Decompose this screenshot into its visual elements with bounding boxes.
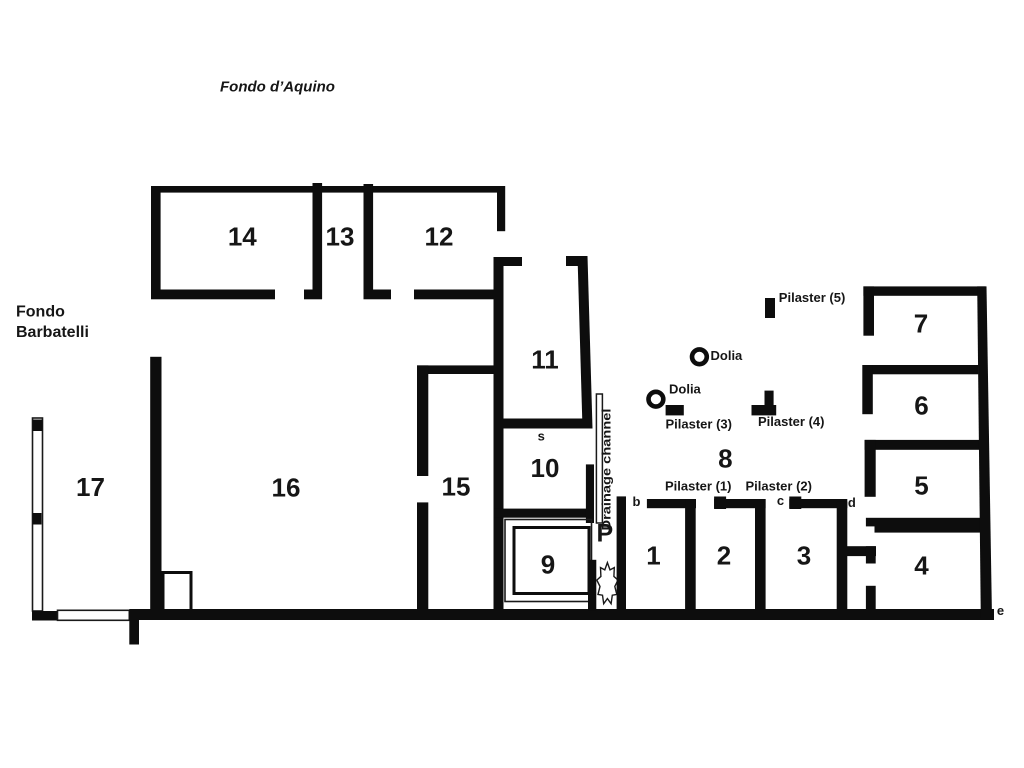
svg-text:4: 4 xyxy=(914,551,929,581)
svg-text:10: 10 xyxy=(531,453,560,483)
svg-text:8: 8 xyxy=(718,443,732,473)
svg-text:s: s xyxy=(538,428,545,443)
svg-text:15: 15 xyxy=(442,472,471,502)
svg-text:13: 13 xyxy=(326,222,355,252)
svg-text:16: 16 xyxy=(272,473,301,503)
svg-text:7: 7 xyxy=(914,309,928,339)
svg-text:Pilaster (3): Pilaster (3) xyxy=(666,417,732,432)
svg-text:6: 6 xyxy=(914,391,928,421)
svg-text:5: 5 xyxy=(914,471,928,501)
svg-text:Pilaster (4): Pilaster (4) xyxy=(758,414,824,429)
svg-text:Pilaster (2): Pilaster (2) xyxy=(746,479,812,494)
svg-text:Pilaster (5): Pilaster (5) xyxy=(779,290,845,305)
svg-text:Pilaster (1): Pilaster (1) xyxy=(665,479,731,494)
svg-text:e: e xyxy=(997,603,1004,618)
svg-text:9: 9 xyxy=(541,550,555,580)
svg-text:2: 2 xyxy=(717,541,731,571)
svg-text:Dolia: Dolia xyxy=(669,382,702,397)
svg-text:11: 11 xyxy=(531,345,559,375)
svg-text:3: 3 xyxy=(797,541,811,571)
svg-text:14: 14 xyxy=(228,222,257,252)
svg-text:c: c xyxy=(777,493,784,508)
svg-text:Fondo d’Aquino: Fondo d’Aquino xyxy=(220,79,335,96)
svg-text:P: P xyxy=(596,520,613,548)
svg-text:d: d xyxy=(848,495,856,510)
svg-text:Drainage channel: Drainage channel xyxy=(602,409,614,531)
svg-text:1: 1 xyxy=(646,541,660,571)
svg-text:Dolia: Dolia xyxy=(711,348,744,363)
svg-text:FondoBarbatelli: FondoBarbatelli xyxy=(16,304,89,342)
svg-text:12: 12 xyxy=(425,222,454,252)
svg-text:b: b xyxy=(633,494,641,509)
svg-text:17: 17 xyxy=(76,472,105,502)
